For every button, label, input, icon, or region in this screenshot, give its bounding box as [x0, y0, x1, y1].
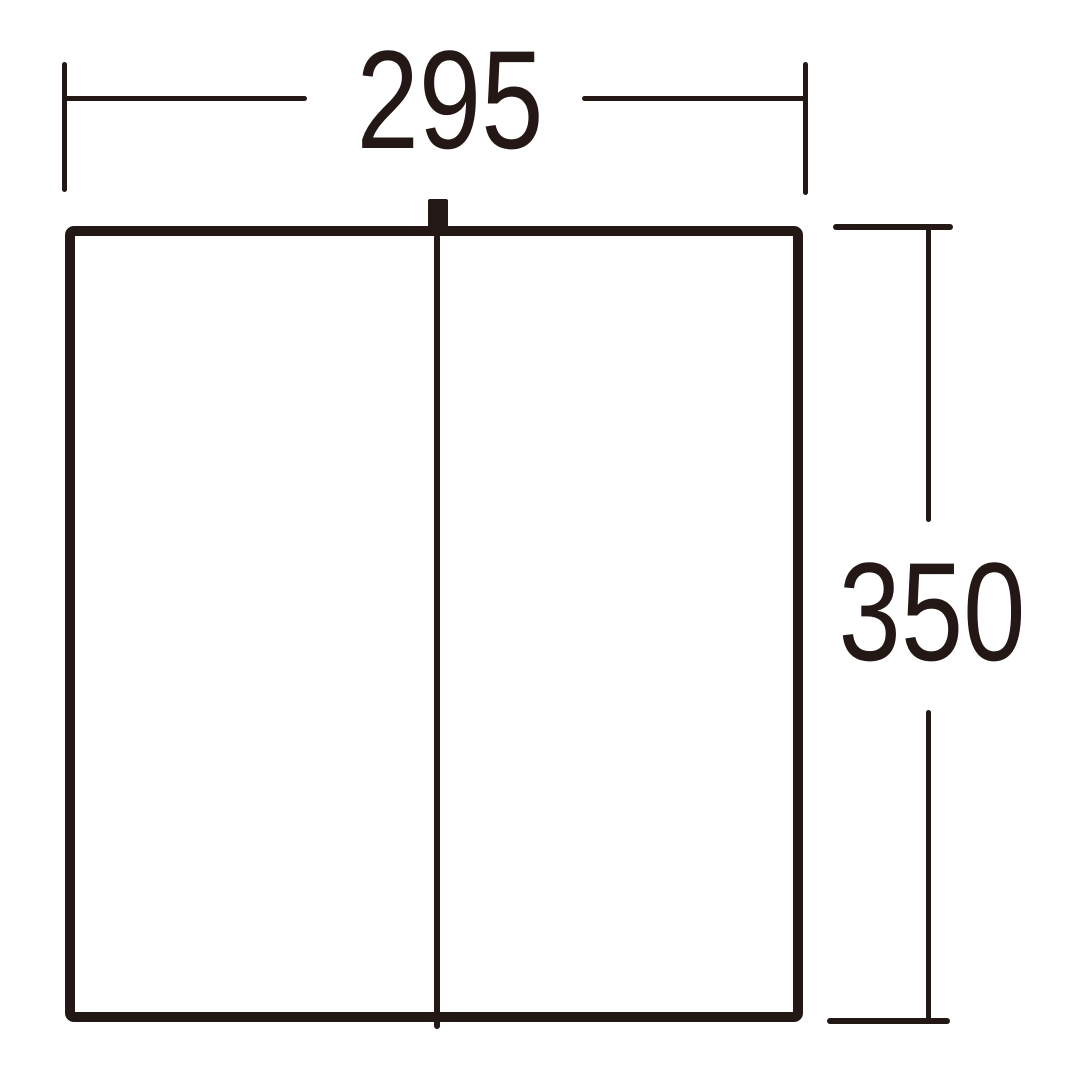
panel-top-tab: [428, 199, 448, 233]
dimension-diagram: 295 350: [0, 0, 1080, 1080]
height-dim-line-lower-segment: [926, 710, 931, 1021]
width-dim-label: 295: [330, 30, 570, 170]
width-dim-line-right-segment: [582, 96, 807, 101]
panel-center-fold-line: [434, 234, 440, 1029]
height-dim-top-tick: [833, 224, 953, 230]
width-dim-right-tick: [803, 62, 808, 195]
width-dim-left-tick: [62, 62, 67, 192]
width-dim-line-left-segment: [64, 96, 307, 101]
height-dim-label: 350: [812, 542, 1052, 682]
height-dim-line-upper-segment: [926, 228, 931, 522]
height-dim-bottom-tick: [827, 1018, 950, 1024]
